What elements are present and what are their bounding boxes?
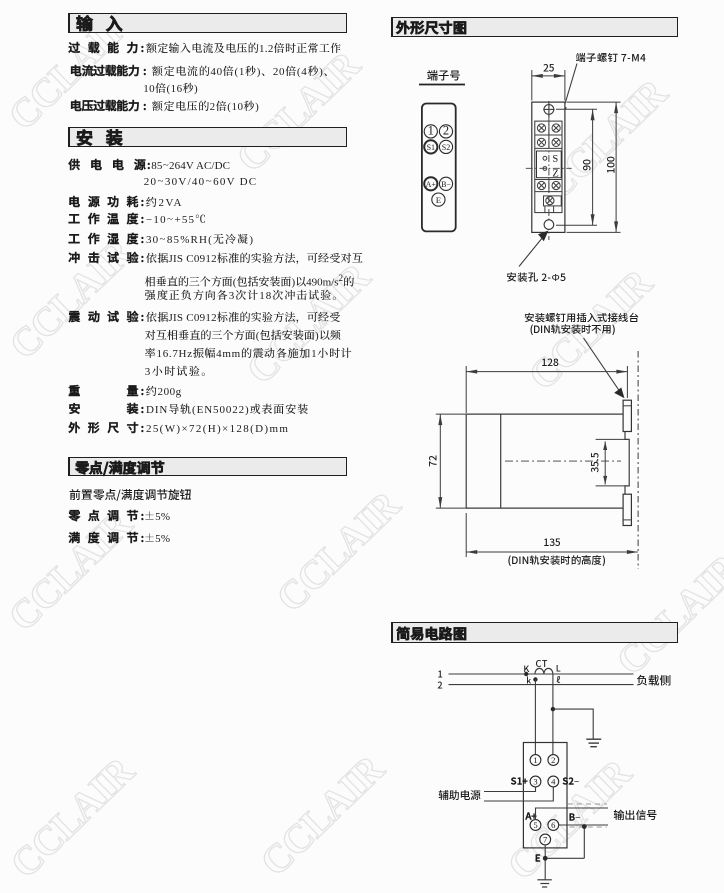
svg-text:负载侧: 负载侧 (637, 673, 672, 689)
svg-text:2: 2 (437, 678, 443, 692)
svg-text:S2: S2 (442, 143, 450, 152)
svg-text:S2−: S2− (563, 774, 580, 788)
svg-text:7: 7 (543, 835, 548, 845)
svg-text:2: 2 (551, 755, 555, 765)
svg-text:Z: Z (552, 169, 558, 180)
svg-text:S1+: S1+ (511, 774, 528, 788)
svg-text:端子螺钉 7-M4: 端子螺钉 7-M4 (576, 49, 647, 64)
svg-text:L: L (556, 662, 561, 675)
svg-text:输出信号: 输出信号 (613, 807, 657, 823)
svg-text:E: E (436, 195, 441, 205)
svg-text:(DIN轨安装时不用): (DIN轨安装时不用) (530, 321, 616, 336)
svg-text:1: 1 (428, 124, 434, 138)
svg-text:1: 1 (533, 755, 537, 765)
svg-text:S1: S1 (427, 143, 435, 152)
svg-text:72: 72 (424, 455, 439, 467)
svg-text:B−: B− (441, 180, 451, 189)
svg-text:128: 128 (541, 354, 559, 369)
svg-text:B−: B− (569, 810, 581, 824)
svg-text:E: E (535, 850, 541, 864)
svg-text:135: 135 (543, 534, 560, 549)
svg-text:25: 25 (543, 59, 555, 74)
svg-text:35.5: 35.5 (586, 452, 601, 472)
svg-text:100: 100 (602, 156, 617, 174)
svg-text:6: 6 (551, 820, 556, 830)
svg-text:90: 90 (579, 159, 594, 171)
svg-text:CT: CT (536, 656, 548, 670)
svg-text:A+: A+ (426, 180, 437, 189)
svg-text:S: S (552, 154, 558, 165)
svg-text:3: 3 (533, 777, 537, 787)
svg-text:端子号: 端子号 (427, 67, 461, 83)
svg-text:(DIN轨安装时的高度): (DIN轨安装时的高度) (507, 552, 605, 567)
svg-text:辅助电源: 辅助电源 (438, 788, 481, 803)
svg-text:安装孔 2-Φ5: 安装孔 2-Φ5 (507, 269, 567, 284)
svg-text:K: K (523, 662, 530, 675)
svg-text:4: 4 (551, 777, 556, 787)
svg-text:2: 2 (443, 124, 449, 138)
